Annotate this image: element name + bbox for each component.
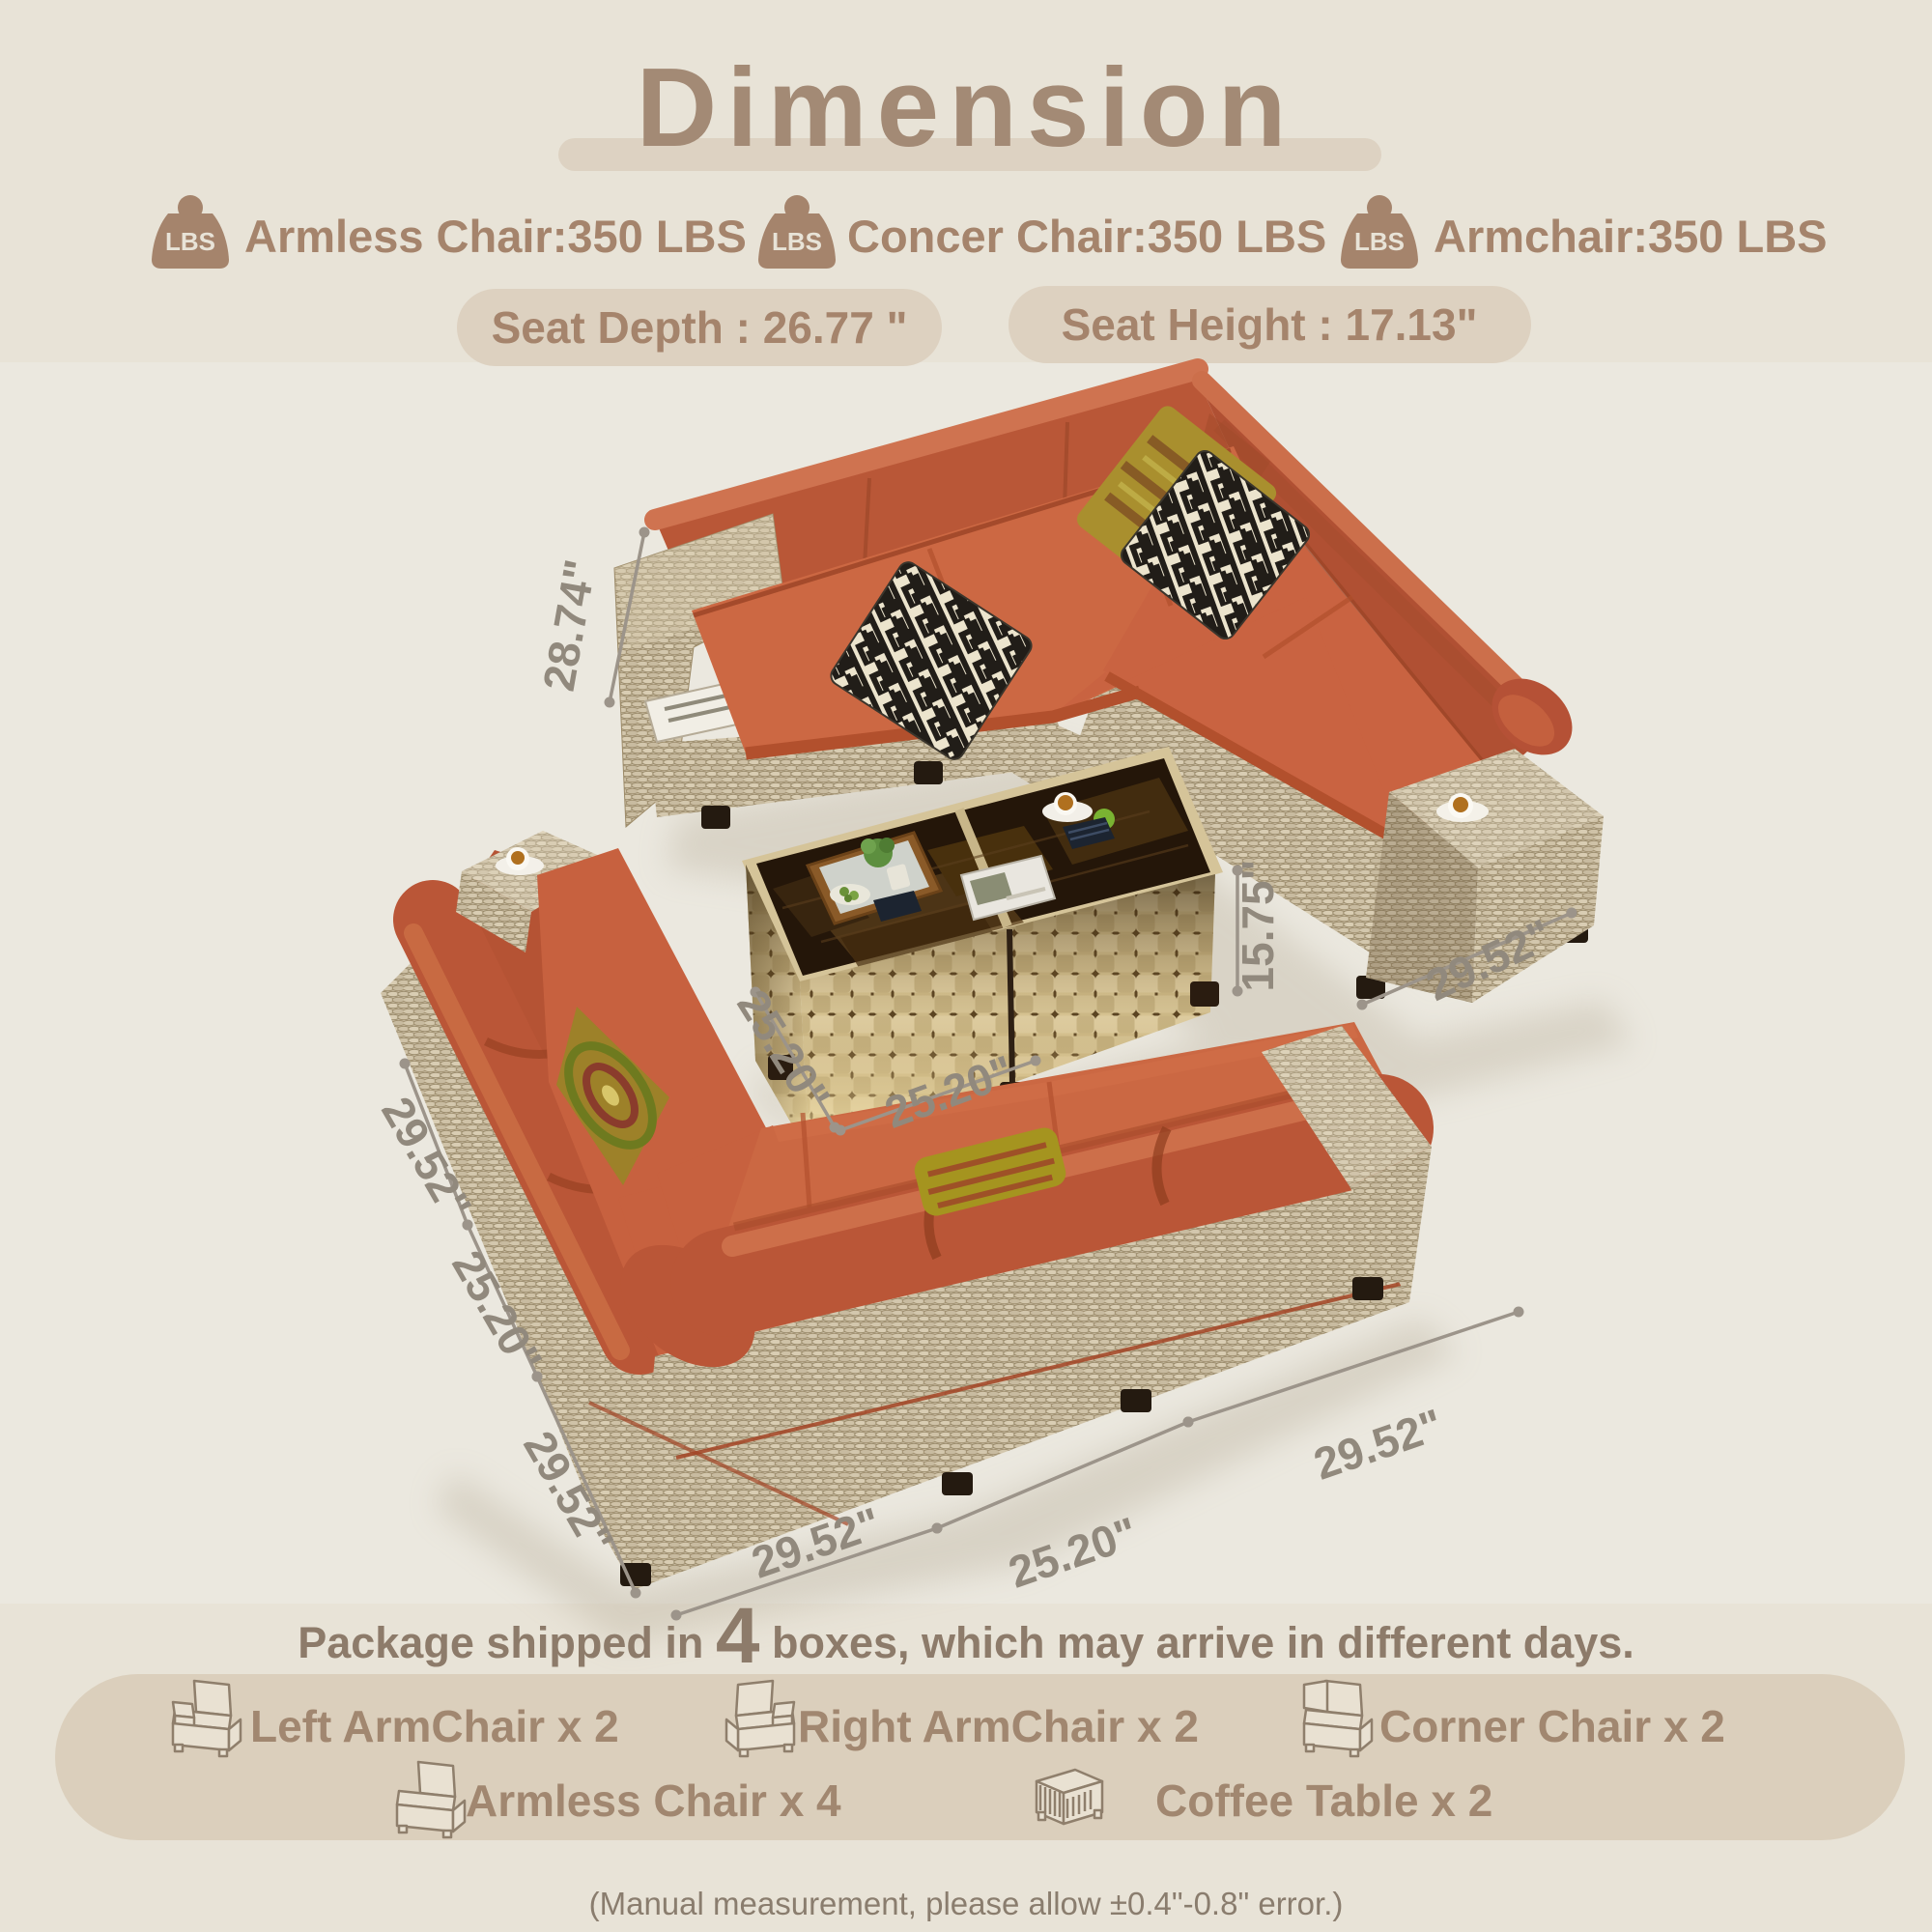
svg-text:(Manual measurement, please al: (Manual measurement, please allow ±0.4"-… [589, 1886, 1344, 1921]
svg-text:Coffee Table x 2: Coffee Table x 2 [1155, 1776, 1492, 1826]
svg-text:Concer Chair:350 LBS: Concer Chair:350 LBS [847, 211, 1326, 262]
svg-text:LBS: LBS [165, 227, 215, 256]
svg-text:Right ArmChair x 2: Right ArmChair x 2 [798, 1701, 1199, 1751]
svg-text:15.75": 15.75" [1233, 860, 1283, 992]
svg-text:Armless Chair x 4: Armless Chair x 4 [466, 1776, 841, 1826]
svg-text:Seat Depth : 26.77 ": Seat Depth : 26.77 " [492, 302, 908, 353]
svg-text:Armless Chair:350 LBS: Armless Chair:350 LBS [244, 211, 747, 262]
svg-text:LBS: LBS [1354, 227, 1405, 256]
svg-text:Dimension: Dimension [637, 44, 1296, 170]
svg-text:Corner Chair x 2: Corner Chair x 2 [1379, 1701, 1725, 1751]
svg-text:Left ArmChair x 2: Left ArmChair x 2 [250, 1701, 619, 1751]
svg-text:Seat Height : 17.13": Seat Height : 17.13" [1062, 299, 1478, 350]
svg-text:Armchair:350 LBS: Armchair:350 LBS [1434, 211, 1828, 262]
svg-text:LBS: LBS [772, 227, 822, 256]
